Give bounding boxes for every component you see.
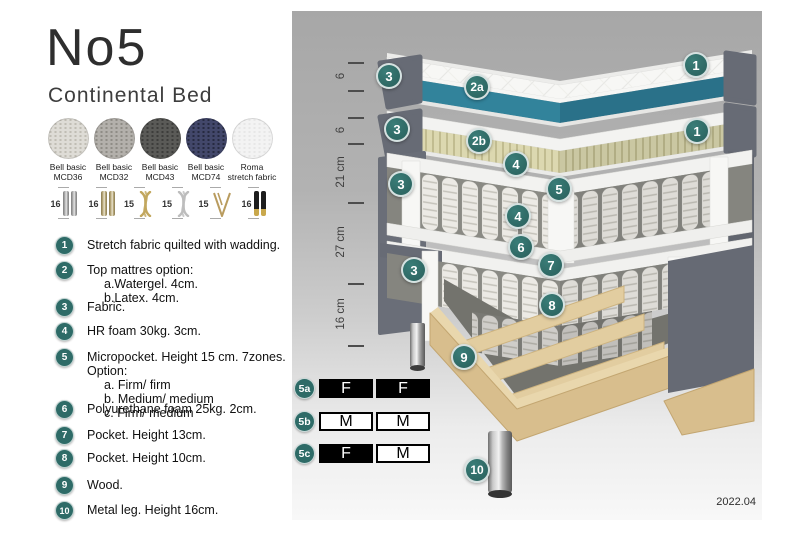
callout-badge: 9 — [451, 344, 477, 370]
callout-badge: 3 — [401, 257, 427, 283]
callout-badge: 4 — [503, 151, 529, 177]
firmness-option-badge: 5a — [294, 378, 315, 399]
component-legend: 1Stretch fabric quilted with wadding.2To… — [0, 0, 292, 533]
legend-item: 4HR foam 30kg. 3cm. — [55, 322, 201, 341]
legend-item: 10Metal leg. Height 16cm. — [55, 501, 218, 520]
callout-badge: 3 — [388, 171, 414, 197]
legend-number-badge: 9 — [55, 476, 74, 495]
callout-badge: 8 — [539, 292, 565, 318]
callout-badge: 5 — [546, 176, 572, 202]
legend-sub-line: a.Watergel. 4cm. — [87, 277, 198, 291]
legend-text: Metal leg. Height 16cm. — [87, 501, 218, 520]
callout-badge: 3 — [376, 63, 402, 89]
legend-main-line: Stretch fabric quilted with wadding. — [87, 238, 280, 252]
legend-text: Polyurethane foam 25kg. 2cm. — [87, 400, 257, 419]
legend-main-line: Micropocket. Height 15 cm. 7zones. Optio… — [87, 350, 292, 378]
scale-label: 27 cm — [335, 212, 349, 272]
scale-tick — [348, 90, 364, 92]
firmness-cell: M — [319, 412, 373, 431]
callout-badge: 10 — [464, 457, 490, 483]
legend-item: 1Stretch fabric quilted with wadding. — [55, 236, 280, 255]
firmness-row: 5aFF — [294, 378, 430, 399]
legend-sub-line: a. Firm/ firm — [87, 378, 292, 392]
callout-badge: 6 — [508, 234, 534, 260]
legend-main-line: Wood. — [87, 478, 123, 492]
legend-number-badge: 6 — [55, 400, 74, 419]
legend-item: 8Pocket. Height 10cm. — [55, 449, 206, 468]
legend-number-badge: 8 — [55, 449, 74, 468]
firmness-cell: F — [319, 444, 373, 463]
legend-item: 6Polyurethane foam 25kg. 2cm. — [55, 400, 257, 419]
callout-badge: 1 — [684, 118, 710, 144]
legend-number-badge: 3 — [55, 298, 74, 317]
legend-main-line: Top mattres option: — [87, 263, 198, 277]
legend-number-badge: 4 — [55, 322, 74, 341]
callout-badge: 2a — [464, 74, 490, 100]
legend-number-badge: 2 — [55, 261, 74, 280]
legend-text: HR foam 30kg. 3cm. — [87, 322, 201, 341]
firmness-cells: MM — [319, 412, 430, 431]
legend-main-line: HR foam 30kg. 3cm. — [87, 324, 201, 338]
scale-tick — [348, 202, 364, 204]
legend-number-badge: 5 — [55, 348, 74, 367]
firmness-cell: F — [319, 379, 373, 398]
legend-number-badge: 10 — [55, 501, 74, 520]
legend-item: 3Fabric. — [55, 298, 125, 317]
legend-item: 7Pocket. Height 13cm. — [55, 426, 206, 445]
page: No5 Continental Bed Bell basicMCD36Bell … — [0, 0, 800, 533]
legend-text: Pocket. Height 10cm. — [87, 449, 206, 468]
scale-tick — [348, 62, 364, 64]
callout-badge: 3 — [384, 116, 410, 142]
firmness-cells: FF — [319, 379, 430, 398]
firmness-row: 5bMM — [294, 411, 430, 432]
scale-tick — [348, 117, 364, 119]
firmness-option-badge: 5c — [294, 443, 315, 464]
callout-badge: 7 — [538, 252, 564, 278]
firmness-cell: M — [376, 444, 430, 463]
scale-tick — [348, 345, 364, 347]
diagram-panel: 12a312b345346738910 6621 cm27 cm16 cm 5a… — [292, 11, 762, 520]
callout-badge: 4 — [505, 203, 531, 229]
legend-main-line: Metal leg. Height 16cm. — [87, 503, 218, 517]
legend-main-line: Pocket. Height 10cm. — [87, 451, 206, 465]
version-label: 2022.04 — [716, 496, 756, 508]
layer-base-27cm — [380, 238, 754, 441]
callout-badge: 2b — [466, 128, 492, 154]
legend-number-badge: 7 — [55, 426, 74, 445]
firmness-row: 5cFM — [294, 443, 430, 464]
firmness-cell: M — [376, 412, 430, 431]
legend-text: Pocket. Height 13cm. — [87, 426, 206, 445]
scale-tick — [348, 143, 364, 145]
legend-item: 9Wood. — [55, 476, 123, 495]
scale-label: 16 cm — [335, 284, 349, 344]
legend-main-line: Fabric. — [87, 300, 125, 314]
firmness-option-badge: 5b — [294, 411, 315, 432]
legend-number-badge: 1 — [55, 236, 74, 255]
firmness-cells: FM — [319, 444, 430, 463]
legend-main-line: Pocket. Height 13cm. — [87, 428, 206, 442]
legend-text: Wood. — [87, 476, 123, 495]
scale-tick — [348, 283, 364, 285]
legend-main-line: Polyurethane foam 25kg. 2cm. — [87, 402, 257, 416]
scale-label: 6 — [335, 46, 349, 106]
firmness-cell: F — [376, 379, 430, 398]
callout-badge: 1 — [683, 52, 709, 78]
legend-text: Fabric. — [87, 298, 125, 317]
scale-label: 21 cm — [335, 142, 349, 202]
legend-text: Stretch fabric quilted with wadding. — [87, 236, 280, 255]
